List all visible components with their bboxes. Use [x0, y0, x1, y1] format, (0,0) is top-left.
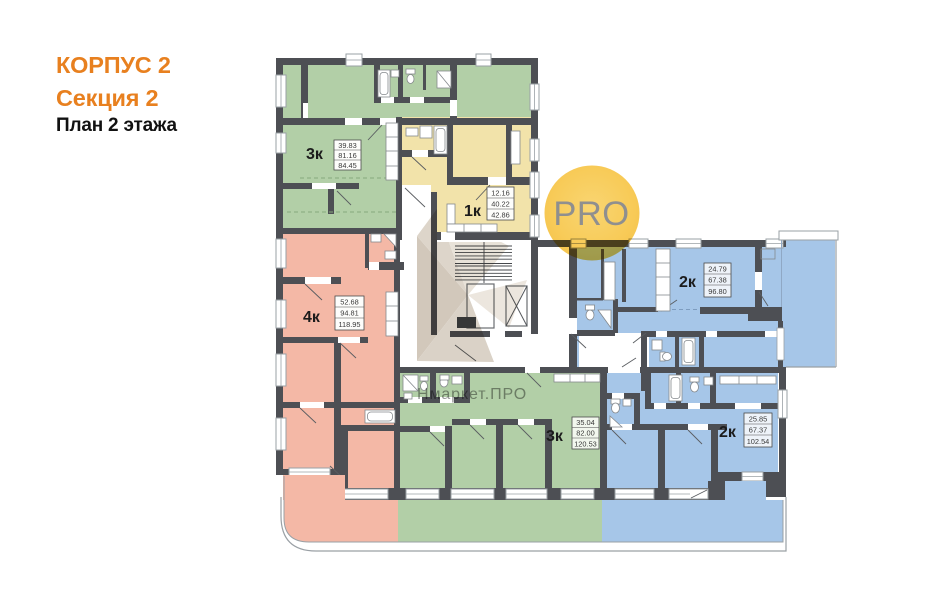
svg-text:118.95: 118.95 [338, 320, 360, 329]
svg-text:67.38: 67.38 [708, 276, 727, 285]
svg-text:96.80: 96.80 [708, 287, 727, 296]
svg-text:40.22: 40.22 [491, 200, 510, 209]
svg-text:3к: 3к [546, 428, 564, 445]
svg-text:12.16: 12.16 [491, 189, 510, 198]
svg-text:42.86: 42.86 [491, 211, 510, 220]
svg-text:PRO: PRO [553, 195, 629, 233]
svg-text:39.83: 39.83 [338, 141, 357, 150]
svg-text:4к: 4к [303, 309, 321, 326]
svg-text:52.68: 52.68 [340, 298, 359, 307]
svg-text:Нмаркет.ПРО: Нмаркет.ПРО [417, 386, 527, 403]
svg-text:84.45: 84.45 [338, 161, 357, 170]
svg-text:2к: 2к [679, 274, 697, 291]
svg-text:Секция 2: Секция 2 [56, 85, 159, 111]
svg-text:2к: 2к [719, 424, 737, 441]
svg-text:120.53: 120.53 [574, 440, 597, 449]
svg-text:3к: 3к [306, 146, 324, 163]
svg-text:82.00: 82.00 [576, 429, 595, 438]
svg-text:25.85: 25.85 [749, 415, 768, 424]
svg-text:35.04: 35.04 [576, 418, 595, 427]
svg-text:24.79: 24.79 [708, 265, 727, 274]
svg-text:81.16: 81.16 [338, 151, 357, 160]
svg-text:1к: 1к [464, 203, 482, 220]
svg-text:КОРПУС 2: КОРПУС 2 [56, 52, 171, 78]
svg-text:67.37: 67.37 [749, 426, 768, 435]
svg-text:102.54: 102.54 [747, 437, 770, 446]
svg-text:План 2 этажа: План 2 этажа [56, 115, 178, 136]
svg-text:94.81: 94.81 [340, 309, 359, 318]
